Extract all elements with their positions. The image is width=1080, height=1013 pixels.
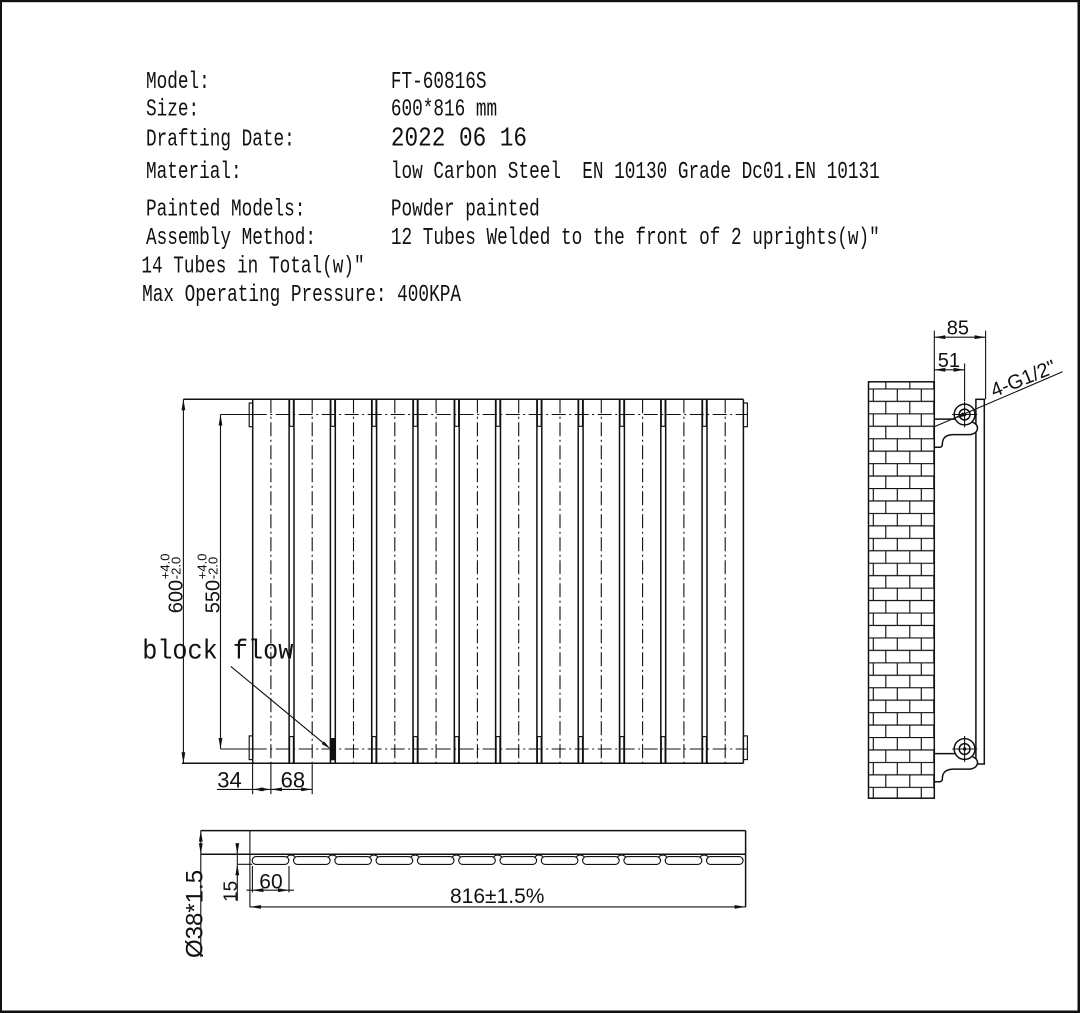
svg-text:block flow: block flow xyxy=(142,635,293,667)
svg-text:Max Operating Pressure: 400KPA: Max Operating Pressure: 400KPA xyxy=(142,282,461,309)
svg-text:51: 51 xyxy=(938,350,960,372)
svg-text:816±1.5%: 816±1.5% xyxy=(450,885,544,908)
svg-text:Model:: Model: xyxy=(146,69,210,96)
svg-text:600: 600 xyxy=(166,580,188,613)
svg-text:Drafting Date:: Drafting Date: xyxy=(146,126,295,153)
svg-text:34: 34 xyxy=(217,768,241,793)
svg-text:85: 85 xyxy=(947,317,969,339)
svg-text:14 Tubes in Total(w)″: 14 Tubes in Total(w)″ xyxy=(141,253,364,280)
svg-text:low Carbon Steel EN 10130 Gra: low Carbon Steel EN 10130 Grade Dc01.EN … xyxy=(391,159,880,186)
svg-text:Assembly Method:: Assembly Method: xyxy=(146,225,316,252)
svg-text:68: 68 xyxy=(281,768,305,793)
svg-text:Ø38*1.5: Ø38*1.5 xyxy=(182,870,209,958)
svg-text:60: 60 xyxy=(259,870,282,893)
svg-text:Material:: Material: xyxy=(146,159,242,186)
svg-text:-2.0: -2.0 xyxy=(206,557,221,579)
svg-text:15: 15 xyxy=(221,881,242,902)
svg-text:Powder painted: Powder painted xyxy=(391,196,540,223)
svg-text:600*816 mm: 600*816 mm xyxy=(391,96,497,123)
svg-text:FT-60816S: FT-60816S xyxy=(391,69,487,96)
svg-text:550: 550 xyxy=(203,580,225,613)
svg-text:2022 06 16: 2022 06 16 xyxy=(391,124,527,154)
svg-text:12 Tubes Welded to the front o: 12 Tubes Welded to the front of 2 uprigh… xyxy=(391,225,880,252)
svg-text:Painted Models:: Painted Models: xyxy=(146,196,305,223)
svg-text:Size:: Size: xyxy=(146,96,199,123)
svg-text:-2.0: -2.0 xyxy=(169,557,184,579)
